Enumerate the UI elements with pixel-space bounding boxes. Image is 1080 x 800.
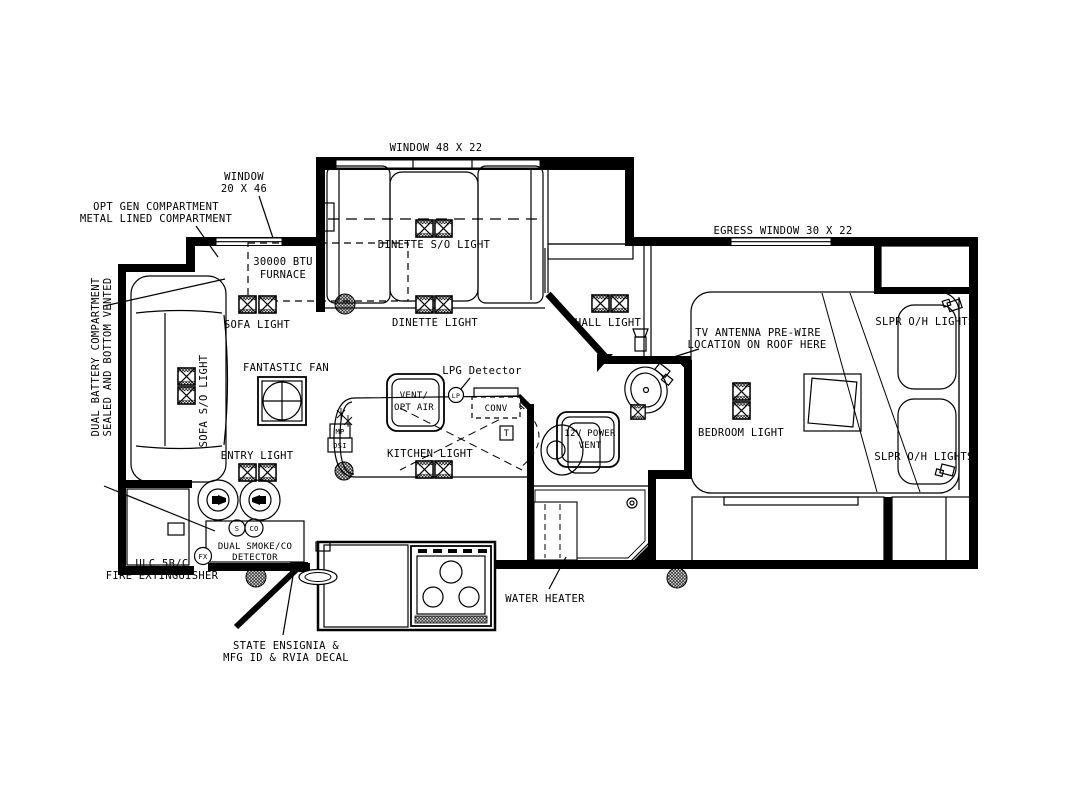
kitchen: MP DSI VENT/ OPT AIR LP LPG Detector CON… (328, 365, 539, 480)
co-badge: CO (249, 525, 258, 533)
sofa-so-light-label: SOFA S/O LIGHT (198, 354, 210, 447)
slpr-oh-lights-top-label: SLPR O/H LIGHTS (875, 316, 974, 328)
water-heater-label: WATER HEATER (505, 593, 585, 605)
ensignia-label2: MFG ID & RVIA DECAL (223, 652, 349, 664)
fantastic-fan: FANTASTIC FAN (243, 362, 329, 425)
kitchen-light: KITCHEN LIGHT (387, 448, 473, 478)
furnace-label1: 30000 BTU (253, 256, 313, 268)
entry-door (236, 568, 298, 627)
sofa-light-label: SOFA LIGHT (224, 319, 291, 331)
sofa-slideout (127, 276, 228, 565)
water-heater (534, 502, 577, 560)
bed-pedestal (692, 497, 970, 561)
roof-vent-opt-air: VENT/ OPT AIR (387, 374, 444, 431)
pillow (898, 399, 956, 484)
floorplan-page: MP DSI VENT/ OPT AIR LP LPG Detector CON… (0, 0, 1080, 800)
tv-antenna-label1: TV ANTENNA PRE-WIRE (695, 327, 821, 339)
window-20-label2: 20 X 46 (221, 183, 267, 195)
shower (531, 486, 649, 562)
power-vent-label2: VENT (579, 441, 602, 451)
dinette-lights: DINETTE S/O LIGHT DINETTE LIGHT (378, 220, 491, 329)
slpr-light-icon (935, 463, 954, 479)
ensignia-label1: STATE ENSIGNIA & (233, 640, 339, 652)
sofa-light: SOFA LIGHT (224, 296, 291, 331)
convection-microwave: CONV (472, 388, 520, 418)
thermostat: T (500, 426, 513, 440)
overhead-cabinet (881, 246, 970, 288)
speaker-icon (198, 480, 238, 520)
dual-battery-label2: SEALED AND BOTTOM VENTED (102, 278, 114, 437)
bathroom-light-icon (631, 405, 645, 419)
vent-opt-air-label2: OPT AIR (394, 403, 434, 413)
bathroom-sink (620, 363, 673, 418)
smoke-co-detector: S CO DUAL SMOKE/CO DETECTOR (206, 519, 304, 563)
dinette-light-label: DINETTE LIGHT (392, 317, 478, 329)
monitor-panel-badge: MP (335, 428, 344, 436)
marker-dot-icon (335, 462, 353, 480)
bedroom-light: BEDROOM LIGHT (698, 383, 784, 439)
bedroom: SLPR O/H LIGHTS SLPR O/H LIGHTS BEDROOM … (658, 246, 975, 588)
opt-gen-label1: OPT GEN COMPARTMENT (93, 201, 219, 213)
kitchen-light-label: KITCHEN LIGHT (387, 448, 473, 460)
sofa-so-light: SOFA S/O LIGHT (178, 354, 210, 447)
plumbing-vent-icon (633, 329, 648, 351)
entry-light-label: ENTRY LIGHT (221, 450, 294, 462)
conv-label: CONV (485, 404, 508, 414)
dsi-badge: DSI (333, 442, 347, 450)
dinette-so-light-label: DINETTE S/O LIGHT (378, 239, 491, 251)
marker-dot-icon (246, 567, 266, 587)
marker-dot-icon (335, 294, 355, 314)
smoke-detector-label2: DETECTOR (232, 553, 278, 563)
window-20-label1: WINDOW (224, 171, 264, 183)
window-48-label: WINDOW 48 X 22 (390, 142, 483, 154)
slpr-oh-lights-bottom-label: SLPR O/H LIGHTS (874, 451, 973, 463)
bedroom-light-label: BEDROOM LIGHT (698, 427, 784, 439)
leader-line (461, 378, 470, 389)
fantastic-fan-label: FANTASTIC FAN (243, 362, 329, 374)
lpg-badge: LP (452, 392, 460, 400)
wardrobe-cabinet (548, 166, 626, 244)
leader-line (259, 196, 273, 238)
tv-antenna-label2: LOCATION ON ROOF HERE (687, 339, 826, 351)
battery-compartment-box (127, 489, 189, 565)
hall-light-label: HALL LIGHT (575, 317, 642, 329)
entry-light: ENTRY LIGHT (221, 450, 294, 481)
opt-gen-label2: METAL LINED COMPARTMENT (80, 213, 233, 225)
egress-window-label: EGRESS WINDOW 30 X 22 (713, 225, 852, 237)
power-vent: 12V POWER VENT (557, 412, 619, 467)
vent-opt-air-label1: VENT/ (400, 391, 429, 401)
floorplan-drawing: MP DSI VENT/ OPT AIR LP LPG Detector CON… (0, 0, 1080, 800)
smoke-detector-label1: DUAL SMOKE/CO (218, 542, 292, 552)
dual-battery-label1: DUAL BATTERY COMPARTMENT (90, 277, 102, 436)
galley-bumpout (316, 542, 495, 630)
ulc-label1: ULC 5B/C (136, 558, 189, 570)
furnace: 30000 BTU FURNACE (248, 243, 408, 301)
smoke-badge: S (235, 525, 240, 533)
marker-dot-icon (667, 568, 687, 588)
hall-light: HALL LIGHT (575, 295, 642, 329)
furnace-label2: FURNACE (260, 269, 306, 281)
power-vent-label1: 12V POWER (564, 429, 616, 439)
ulc-label2: FIRE EXTINGUISHER (106, 570, 219, 582)
cabinet-shelf (548, 244, 633, 259)
thermostat-badge: T (504, 429, 509, 439)
speaker-icon (240, 480, 280, 520)
drain-icon (627, 498, 637, 508)
fire-ext-badge: FX (198, 553, 208, 561)
lpg-detector-label: LPG Detector (442, 365, 521, 377)
